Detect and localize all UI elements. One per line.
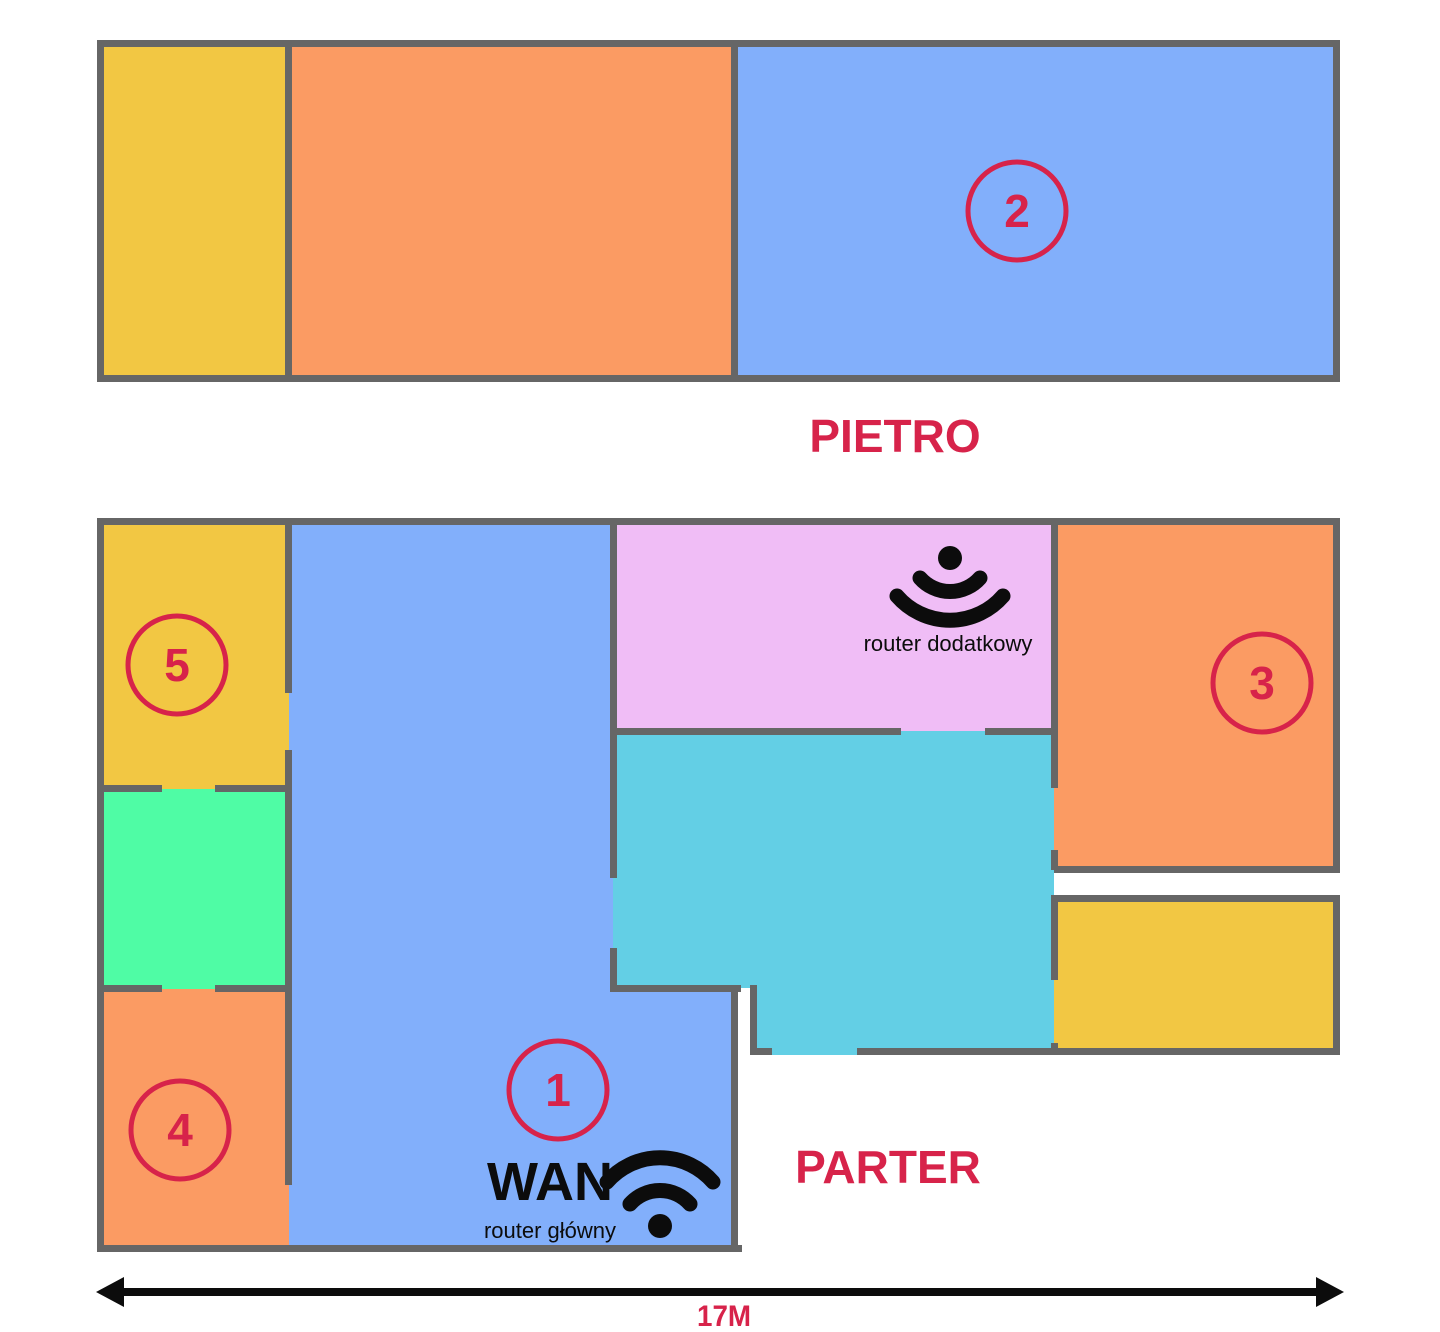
floor-plan-canvas: 12345 PIETRO PARTER WAN router główny ro… <box>0 0 1440 1332</box>
ground-floor-label: PARTER <box>795 1141 981 1193</box>
room-upper-left-yellow <box>100 43 289 379</box>
wall-segment <box>731 985 738 1252</box>
marker-number: 3 <box>1249 657 1275 709</box>
wifi-dot <box>938 546 962 570</box>
room-bottom-right-yellow <box>1054 898 1337 1055</box>
wall-segment <box>610 728 901 735</box>
room-room-3-orange <box>1054 521 1337 869</box>
wall-segment <box>215 985 292 992</box>
wall-segment <box>610 985 741 992</box>
wall-segment <box>1333 518 1340 873</box>
wall-segment <box>285 518 292 693</box>
dimension-arrowhead-left <box>96 1277 124 1307</box>
wall-segment <box>1051 895 1058 980</box>
room-pink-router-room <box>613 521 1054 732</box>
wall-segment <box>97 518 104 1252</box>
wall-segment <box>750 985 757 1055</box>
wall-segment <box>857 1048 1340 1055</box>
wall-segment <box>97 375 1340 382</box>
dimension-arrowhead-right <box>1316 1277 1344 1307</box>
marker-number: 2 <box>1004 185 1030 237</box>
floor-plan-svg: 12345 PIETRO PARTER WAN router główny ro… <box>0 0 1440 1332</box>
dimension-arrow: 17M <box>96 1277 1344 1332</box>
wall-segment <box>215 785 292 792</box>
wall-segment <box>97 40 1340 47</box>
room-room-4-orange <box>100 989 289 1249</box>
wall-segment <box>285 40 292 382</box>
wall-segment <box>97 40 104 382</box>
marker-number: 4 <box>167 1104 193 1156</box>
wall-segment <box>285 750 292 1185</box>
wall-segment <box>1333 40 1340 382</box>
room-upper-middle-orange <box>289 43 735 379</box>
wall-segment <box>1051 1043 1058 1055</box>
wifi-dot <box>648 1214 672 1238</box>
main-router-label: router główny <box>484 1218 616 1243</box>
wall-segment <box>1054 866 1340 873</box>
wall-segment <box>1051 895 1340 902</box>
dimension-label: 17M <box>697 1300 751 1332</box>
room-upper-right-blue-room-2 <box>735 43 1337 379</box>
room-left-green-room <box>100 789 289 989</box>
secondary-router-label: router dodatkowy <box>864 631 1033 656</box>
wan-label: WAN <box>487 1152 613 1212</box>
wall-segment <box>1333 895 1340 1055</box>
wall-segment <box>610 518 617 878</box>
wall-segment <box>97 985 162 992</box>
wall-segment <box>1051 518 1058 788</box>
marker-number: 5 <box>164 639 190 691</box>
wall-segment <box>97 518 1340 525</box>
marker-number: 1 <box>545 1064 571 1116</box>
wall-segment <box>985 728 1055 735</box>
wall-segment <box>97 1245 742 1252</box>
upper-floor-label: PIETRO <box>809 410 980 462</box>
wall-segment <box>731 40 738 382</box>
wall-segment <box>97 785 162 792</box>
wall-segment <box>1051 850 1058 870</box>
